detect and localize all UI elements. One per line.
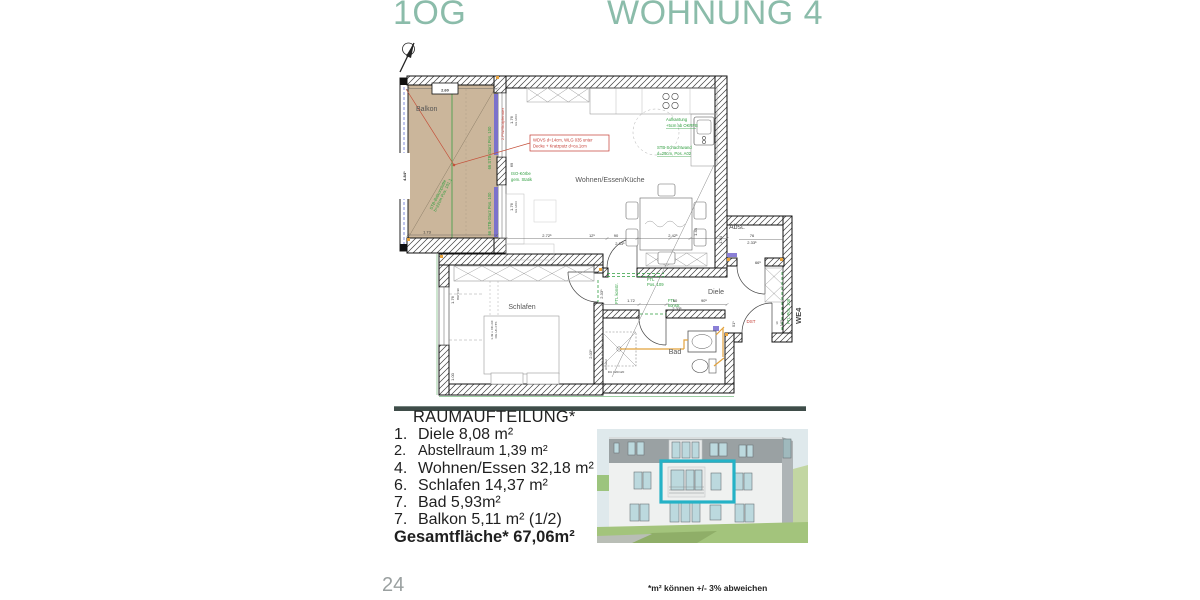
- dim-label: 2.72⁵: [542, 233, 552, 238]
- dim-label: 2.42⁵: [668, 233, 678, 238]
- dim-label: OG UK-FTS: [494, 322, 498, 339]
- page: 1OG WOHNUNG 4: [0, 0, 1200, 600]
- dim-label: 1.44: [718, 235, 723, 244]
- north-arrow-icon: [400, 43, 415, 72]
- dim-label: 1.72: [627, 298, 636, 303]
- dst-label: DST: [747, 319, 756, 324]
- floor-label: 1OG: [393, 0, 466, 33]
- dim-label: DU 120/120: [608, 370, 625, 374]
- svg-text:d=25cm, Pos. A02: d=25cm, Pos. A02: [657, 151, 692, 156]
- footnote: *m² können +/- 3% abweichen: [648, 583, 767, 593]
- dim-label: 76: [750, 233, 755, 238]
- dim-label: 1.44: [693, 227, 698, 236]
- room-list-total: Gesamtfläche* 67,06m²: [394, 528, 624, 546]
- stove-icon: [663, 93, 678, 108]
- fenster-note: 2.PW/Stülpfenster: [500, 107, 505, 140]
- wdvs-note-line2: Decke + Kratzputz d=ca.1cm: [533, 144, 587, 149]
- ftl108-note: FTL Pos. 108: [786, 298, 791, 324]
- room-list-item: 6. Schlafen 14,37 m²: [394, 477, 624, 494]
- room-list-title: RAUMAUFTEILUNG*: [394, 409, 624, 426]
- svg-text:gem. Statik: gem. Statik: [511, 177, 533, 182]
- dim-label: 2.33⁵: [747, 240, 757, 245]
- room-list-item: 2. Abstellraum 1,39 m²: [394, 443, 624, 460]
- schachtwand-note: STB-Schachtwand: [657, 145, 692, 150]
- dim-label: 66⁵: [755, 260, 761, 265]
- dim-label: 4.84⁵: [402, 171, 407, 181]
- room-label-abst: Abst.: [729, 224, 745, 231]
- room-list: RAUMAUFTEILUNG* 1. Diele 8,08 m² 2. Abst…: [394, 409, 624, 546]
- dim-label: 90: [673, 298, 678, 303]
- room-label-bad: Bad: [669, 349, 682, 356]
- dining-table: [626, 184, 706, 264]
- bathroom-fixtures: [602, 327, 724, 373]
- dim-label: BRH=90: [456, 288, 460, 300]
- dim-label: 12⁵: [589, 233, 595, 238]
- lintel-strip: [494, 187, 498, 237]
- sturz-note: 66 STB-Sturz Pos. 100: [487, 126, 492, 169]
- bedroom-fixtures: [449, 266, 594, 384]
- room-list-item: 1. Diele 8,08 m²: [394, 426, 624, 443]
- washbasin-icon: [688, 331, 716, 352]
- dim-label: bis UKD: [514, 201, 518, 213]
- wdvs-note: WDVS d=14cm, WLG 035 unter Decke + Kratz…: [530, 135, 609, 151]
- svg-text:+5cm ab OKRFB: +5cm ab OKRFB: [666, 123, 698, 128]
- room-label-diele: Diele: [708, 289, 724, 296]
- room-list-item: 4. Wohnen/Essen 32,18 m²: [394, 460, 624, 477]
- dim-label: 1.01: [779, 320, 783, 326]
- dim-label: 90⁵: [701, 298, 707, 303]
- kitchen-fixtures: [590, 88, 717, 166]
- floor-plan: WDVS d=14cm, WLG 035 unter Decke + Kratz…: [394, 32, 806, 406]
- windows-bottom-row: [630, 503, 754, 522]
- svg-text:Pos. 109: Pos. 109: [647, 282, 664, 287]
- dim-label: 2.33⁵: [599, 289, 604, 299]
- balcony: [400, 78, 497, 251]
- we4-label: WE4: [794, 307, 803, 324]
- facade-rendering: [597, 429, 808, 543]
- room-list-item: 7. Balkon 5,11 m² (1/2): [394, 511, 624, 528]
- room-label-balkon: Balkon: [416, 106, 438, 113]
- room-list-item: 7. Bad 5,93m²: [394, 494, 624, 511]
- apartment-label: WOHNUNG 4: [607, 0, 823, 33]
- ftl-konstr-note: FTL konstr.: [614, 283, 619, 304]
- lintel-strip: [494, 94, 498, 155]
- sink-icon: [694, 117, 714, 145]
- dim-label: 69: [509, 162, 514, 167]
- wdvs-note-line1: WDVS d=14cm, WLG 035 unter: [533, 138, 593, 143]
- page-number: 24: [382, 574, 404, 597]
- dim-label: 2.60: [441, 88, 450, 93]
- svg-text:66 STB-Sturz Pos. 100: 66 STB-Sturz Pos. 100: [487, 192, 492, 235]
- armatur-label: Armatur: [604, 359, 608, 370]
- dim-label: 51⁵: [731, 321, 736, 327]
- dim-label: 1.73: [423, 230, 432, 235]
- room-label-schlafen: Schlafen: [508, 304, 535, 311]
- dim-label: 2.33⁵: [615, 241, 625, 246]
- dim-label: 2.33⁵: [672, 306, 682, 311]
- dim-label: 1.00: [450, 372, 455, 381]
- dim-label: 1.76: [450, 295, 455, 304]
- room-label-wohnen: Wohnen/Essen/Küche: [575, 177, 644, 184]
- toilet-icon: [692, 359, 716, 373]
- dim-label: bis UKD: [514, 114, 518, 126]
- dim-label: 2.03⁵: [588, 349, 593, 359]
- iso-note: ISO-Körbe: [511, 171, 531, 176]
- dim-label: 90: [614, 233, 619, 238]
- aufkantung-note: Aufkantung: [666, 117, 688, 122]
